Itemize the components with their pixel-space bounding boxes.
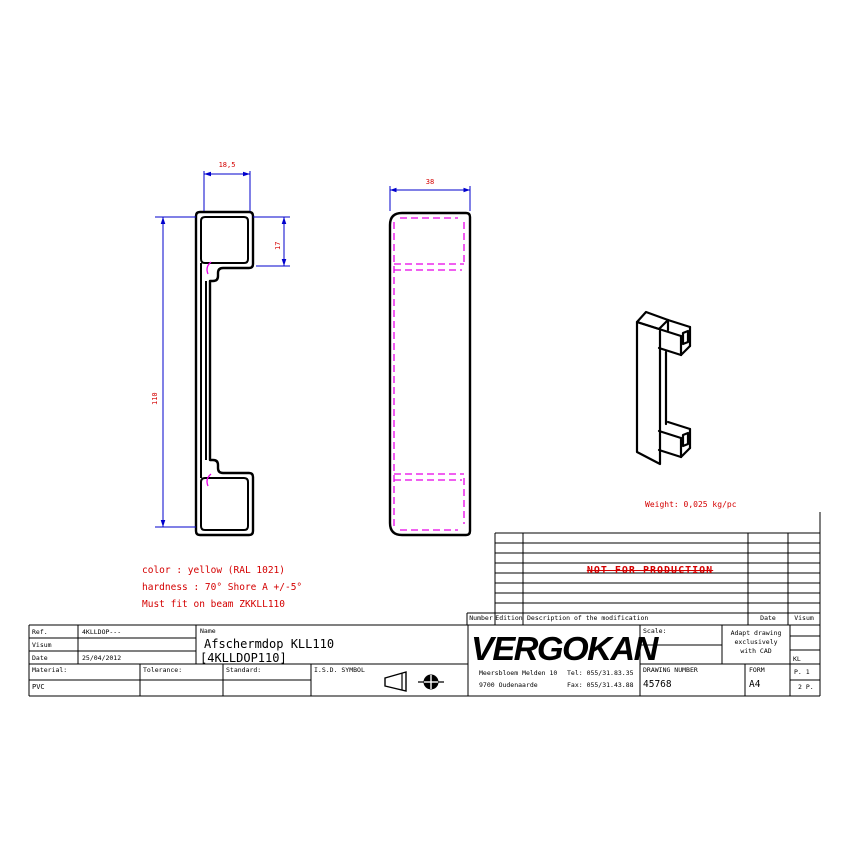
material-label: Material: (32, 667, 67, 674)
cad-note-line3: with CAD (722, 648, 790, 655)
name-label: Name (200, 628, 216, 635)
drawing-number-label: DRAWING NUMBER (643, 667, 698, 674)
cad-note-line1: Adapt drawing (722, 630, 790, 637)
ref-value: 4KLLDOP--- (82, 629, 121, 636)
not-for-production-watermark: NOT FOR PRODUCTION (535, 566, 765, 577)
company-tel: Tel: 055/31.83.35 (567, 670, 634, 677)
dim-hook-height: 17 (275, 242, 282, 250)
revision-header-number: Number (467, 615, 495, 622)
company-fax: Fax: 055/31.43.88 (567, 682, 634, 689)
standard-label: Standard: (226, 667, 261, 674)
cad-drawing-page: 18,5 17 110 38 color : yellow (RAL 1021)… (0, 0, 842, 842)
drawing-linework (0, 0, 842, 842)
drawing-number: 45768 (643, 680, 672, 690)
date-label: Date (32, 655, 48, 662)
form-value: A4 (749, 680, 760, 690)
company-logo: VERGOKAN (471, 632, 657, 667)
scale-label: Scale: (643, 628, 666, 635)
page-count: 2 P. (798, 684, 814, 691)
revision-header-edition: Edition (495, 615, 523, 622)
cad-note-line2: exclusively (722, 639, 790, 646)
weight-note: Weight: 0,025 kg/pc (645, 501, 737, 509)
material-value: PVC (32, 684, 45, 691)
revision-header-description: Description of the modification (527, 615, 648, 622)
revision-header-date: Date (748, 615, 788, 622)
kl-cell: KL (793, 656, 801, 663)
note-fit: Must fit on beam ZKKLL110 (142, 600, 285, 610)
date-value: 25/04/2012 (82, 655, 121, 662)
dim-overall-height: 110 (152, 392, 159, 405)
dim-front-width: 38 (400, 179, 460, 186)
note-hardness: hardness : 70° Shore A +/-5° (142, 583, 302, 593)
isd-symbol-label: I.S.D. SYMBOL (314, 667, 365, 674)
part-code: [4KLLDOP110] (200, 652, 287, 665)
part-name: Afschermdop KLL110 (204, 638, 334, 651)
isometric-view (637, 312, 690, 464)
ref-label: Ref. (32, 629, 48, 636)
side-view (196, 212, 253, 535)
dim-top-width: 18,5 (205, 162, 249, 169)
first-angle-projection-icon (385, 672, 406, 691)
visum-label: Visum (32, 642, 52, 649)
page-number: P. 1 (794, 669, 810, 676)
registration-mark-icon (418, 675, 444, 690)
revision-header-visum: Visum (788, 615, 820, 622)
tolerance-label: Tolerance: (143, 667, 182, 674)
front-view (390, 213, 470, 535)
note-color: color : yellow (RAL 1021) (142, 566, 285, 576)
form-label: FORM (749, 667, 765, 674)
company-address-1: Meersbloem Melden 10 (479, 670, 557, 677)
projection-symbols (385, 672, 444, 691)
company-address-2: 9700 Oudenaarde (479, 682, 538, 689)
